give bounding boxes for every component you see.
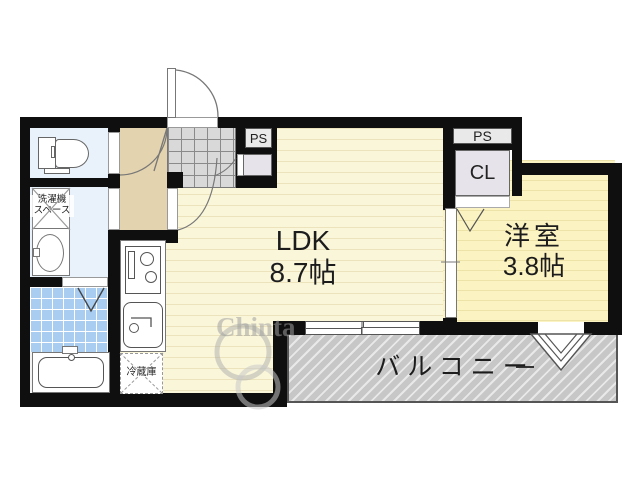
bedroom-label: 洋室 3.8帖: [468, 222, 600, 282]
wall-closet-right: [512, 117, 522, 196]
pipe-space-bedroom-label: PS: [473, 128, 492, 144]
kitchen-burner-2: [145, 271, 157, 283]
fridge-space-label: 冷蔵庫: [121, 367, 162, 379]
wall-slide-stub-lower: [443, 318, 457, 335]
entrance-lower-box: [243, 154, 272, 176]
balcony-name: バルコニー: [375, 353, 535, 381]
pipe-space-bedroom: PS: [453, 128, 512, 144]
wall-toilet-bottom: [30, 178, 108, 187]
wall-washroom-bottom: [30, 277, 62, 287]
bathtub-icon: [38, 357, 104, 388]
floorplan-canvas: PS PS CL 洗濯機 スペース 冷蔵庫: [0, 0, 640, 480]
wall-genkan-step-stub: [167, 172, 183, 188]
wall-bedroom-right: [608, 163, 622, 335]
ldk-name: LDK: [233, 225, 373, 257]
bathroom-tile-floor: [30, 287, 108, 352]
kitchen-faucet-icon: [129, 323, 139, 333]
wall-top-right: [277, 117, 522, 128]
bedroom-size: 3.8帖: [468, 252, 600, 282]
fridge-space-text: 冷蔵庫: [127, 367, 157, 378]
entrance-door-leaf: [167, 68, 176, 118]
ldk-balcony-window-pane-left: [305, 321, 364, 329]
closet-label: CL: [470, 162, 496, 185]
watermark-text-value: Chinta: [216, 312, 296, 342]
wall-top-mid: [218, 117, 236, 128]
ldk-balcony-window-pane-right: [361, 327, 420, 335]
wall-bedroom-top: [512, 163, 622, 175]
washer-space-line1: 洗濯機: [38, 194, 67, 205]
ldk-label: LDK 8.7帖: [233, 225, 373, 289]
wall-bedroom-bottom: [443, 322, 622, 335]
pipe-space-entrance-label: PS: [250, 131, 267, 146]
closet: CL: [455, 150, 510, 196]
washbasin-faucet-icon: [33, 248, 40, 257]
washer-space-label: 洗濯機 スペース: [30, 195, 74, 217]
watermark-text: Chinta: [216, 312, 296, 343]
kitchen-burner-1: [140, 252, 154, 266]
toilet-door: [108, 132, 120, 174]
ldk-size: 8.7帖: [233, 257, 373, 289]
washer-space-line2: スペース: [34, 205, 71, 216]
entrance-door-arc: [176, 70, 218, 117]
kitchen-grill: [128, 251, 135, 279]
entrance-door-threshold: [167, 117, 218, 128]
toilet-bowl-icon: [55, 139, 89, 168]
bedroom-sliding-door: [445, 208, 457, 318]
wall-left: [20, 117, 30, 407]
balcony-label: バルコニー: [330, 353, 580, 382]
washbasin-icon: [36, 234, 64, 272]
bathroom-step: [62, 346, 78, 354]
wall-top-left: [20, 117, 167, 128]
closet-threshold: [455, 196, 510, 208]
hall-ldk-door: [167, 188, 178, 230]
hallway-floor: [118, 126, 167, 232]
bathroom-door: [62, 277, 108, 287]
pipe-space-entrance: PS: [245, 128, 272, 148]
toilet-base: [44, 168, 70, 174]
bathtub-knob: [68, 354, 75, 361]
bedroom-balcony-window-gap: [538, 322, 584, 335]
bedroom-name: 洋室: [468, 222, 600, 252]
wall-ldk-bottom-right: [420, 321, 443, 335]
wall-bottom: [20, 393, 287, 407]
washroom-door: [108, 188, 120, 230]
